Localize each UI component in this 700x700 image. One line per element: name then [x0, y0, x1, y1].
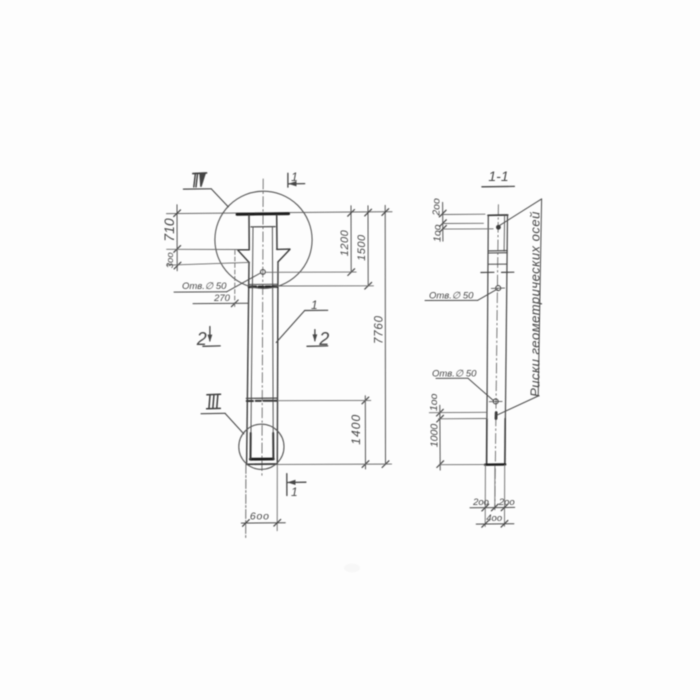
svg-text:Риски геометрических осей: Риски геометрических осей — [528, 211, 543, 397]
svg-text:2oo: 2oo — [472, 497, 489, 508]
svg-text:Отв.∅ 50: Отв.∅ 50 — [429, 291, 474, 302]
svg-text:1400: 1400 — [349, 414, 363, 445]
svg-text:710: 710 — [161, 218, 177, 242]
svg-text:1oo: 1oo — [431, 224, 443, 242]
svg-text:4oo: 4oo — [486, 513, 502, 524]
svg-text:1: 1 — [291, 485, 298, 499]
svg-text:1: 1 — [311, 298, 318, 312]
svg-text:1-1: 1-1 — [488, 168, 508, 184]
svg-text:2oo: 2oo — [498, 497, 515, 508]
svg-text:1oo: 1oo — [428, 393, 440, 411]
svg-text:7760: 7760 — [373, 315, 385, 344]
svg-text:2oo: 2oo — [430, 198, 442, 217]
svg-text:Отв.∅ 50: Отв.∅ 50 — [432, 368, 477, 379]
svg-text:1500: 1500 — [356, 234, 368, 261]
svg-text:3oo: 3oo — [165, 252, 176, 268]
svg-text:270: 270 — [213, 293, 231, 304]
svg-text:1000: 1000 — [428, 424, 440, 448]
svg-text:Отв.∅ 50: Отв.∅ 50 — [182, 281, 227, 292]
svg-text:1: 1 — [291, 170, 298, 184]
svg-text:6oo: 6oo — [250, 511, 270, 523]
svg-text:1200: 1200 — [339, 229, 351, 256]
